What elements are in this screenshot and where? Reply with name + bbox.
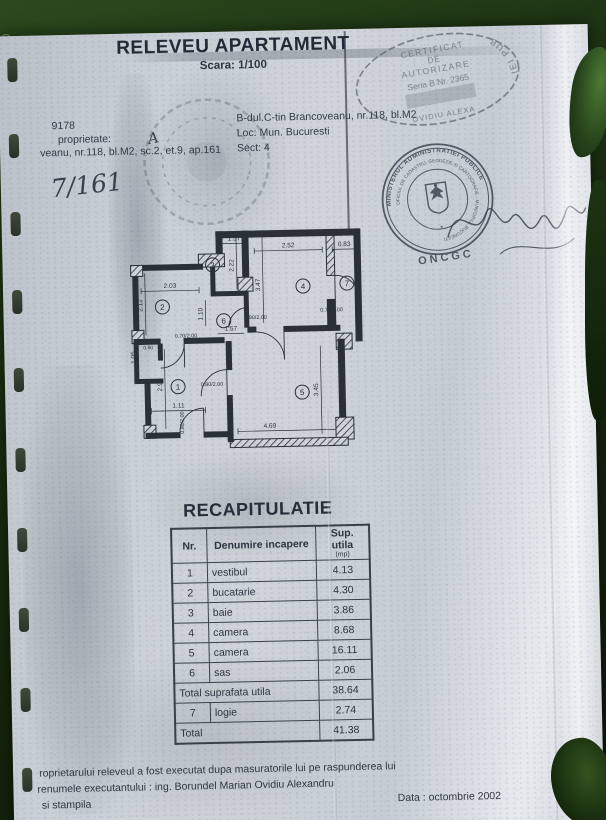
- recap-table: Nr. Denumire incapere Sup. utila (mp) 1v…: [170, 524, 375, 745]
- table-total-row: Total41.38: [175, 719, 373, 744]
- coat-of-arms-eagle: [425, 182, 449, 215]
- floor-plan: 1.57 2.52 0.83 2.22 3.47 2.03 2.12 1.10 …: [114, 220, 414, 478]
- svg-text:2.96: 2.96: [157, 378, 164, 391]
- cert-line: AUTORIZARE: [401, 58, 471, 80]
- svg-text:0.80: 0.80: [143, 345, 153, 351]
- paper-crease: [539, 25, 559, 820]
- address-line2: Loc: Mun. Bucuresti: [237, 124, 330, 140]
- handwritten-mark: A: [146, 128, 160, 148]
- svg-text:7: 7: [345, 279, 350, 288]
- photo-of-document: RELEVEU APARTAMENT Scara: 1/100 IEI PUB …: [0, 0, 606, 820]
- binding-hole: [19, 608, 30, 632]
- owner-line: veanu, nr.118, bl.M2, sc.2, et.9, ap.161: [40, 143, 221, 161]
- footer-date: Data : octombrie 2002: [398, 790, 502, 804]
- dimension-labels: 1.57 2.52 0.83 2.22 3.47 2.03 2.12 1.10 …: [128, 233, 355, 433]
- svg-text:3: 3: [210, 261, 215, 270]
- binding-hole: [9, 134, 20, 158]
- svg-text:4.69: 4.69: [264, 423, 277, 430]
- binding-hole: [22, 768, 33, 792]
- stamp-star: *: [440, 224, 444, 233]
- svg-text:2: 2: [160, 303, 165, 312]
- light-reflection: [544, 24, 601, 820]
- svg-text:1.05: 1.05: [130, 351, 137, 364]
- svg-text:0.70/2.00: 0.70/2.00: [320, 307, 343, 313]
- binding-hole: [17, 528, 28, 552]
- address-line3: Sect: 4: [237, 141, 270, 156]
- svg-text:2.03: 2.03: [164, 283, 177, 290]
- stamp-org: ONCGC: [417, 248, 474, 268]
- col-header-area-unit: (mp): [321, 551, 365, 559]
- document-paper: RELEVEU APARTAMENT Scara: 1/100 IEI PUB …: [0, 24, 604, 820]
- svg-text:0.83: 0.83: [338, 241, 351, 248]
- cert-line: Seria B Nr. 2365: [407, 72, 470, 93]
- svg-text:1.10: 1.10: [197, 307, 204, 320]
- svg-text:3.45: 3.45: [313, 383, 320, 396]
- svg-text:3.47: 3.47: [255, 278, 262, 291]
- ref-number: 9178: [51, 119, 75, 133]
- certificate-stamp: IEI PUB CERTIFICAT DE AUTORIZARE Seria B…: [335, 11, 541, 148]
- table-title: RECAPITULATIE: [157, 497, 357, 522]
- svg-text:0.90/2.00: 0.90/2.00: [244, 315, 267, 321]
- handwritten-note: 7/161: [49, 167, 124, 204]
- col-header-name: Denumire incapere: [207, 526, 317, 563]
- svg-text:5: 5: [300, 388, 305, 397]
- svg-text:0.80/2.00: 0.80/2.00: [201, 382, 224, 388]
- svg-text:0.70/2.00: 0.70/2.00: [175, 333, 198, 339]
- binding-hole: [15, 448, 26, 472]
- binding-hole: [10, 212, 21, 236]
- svg-text:1.11: 1.11: [172, 403, 185, 410]
- footer-line3: si stampila: [42, 799, 92, 812]
- signature: [439, 164, 591, 277]
- door-arcs: [159, 275, 362, 433]
- svg-text:1: 1: [176, 383, 181, 392]
- col-header-nr: Nr.: [171, 528, 207, 563]
- binding-hole: [20, 688, 31, 712]
- address-line1: B-dul.C-tin Brancoveanu, nr.118, bl.M2: [236, 107, 436, 125]
- svg-text:2.22: 2.22: [228, 259, 235, 272]
- svg-text:1.57: 1.57: [224, 325, 237, 332]
- svg-text:6: 6: [221, 317, 226, 326]
- plan-walls: [130, 229, 364, 450]
- binding-hole: [14, 368, 25, 392]
- svg-text:2.12: 2.12: [137, 299, 144, 312]
- svg-text:MINISTERUL ADMINISTRATIEI PUBL: MINISTERUL ADMINISTRATIEI PUBLICE: [379, 141, 488, 207]
- binding-hole: [7, 58, 18, 82]
- binding-hole: [12, 290, 23, 314]
- table-header-row: Nr. Denumire incapere Sup. utila (mp): [171, 525, 370, 564]
- svg-text:0.80/2.00: 0.80/2.00: [180, 411, 186, 434]
- col-header-area: Sup. utila (mp): [316, 525, 370, 561]
- svg-text:2.52: 2.52: [282, 242, 295, 249]
- svg-text:4: 4: [301, 282, 306, 291]
- svg-text:1.57: 1.57: [228, 235, 241, 242]
- col-header-area-label: Sup. utila: [331, 527, 354, 551]
